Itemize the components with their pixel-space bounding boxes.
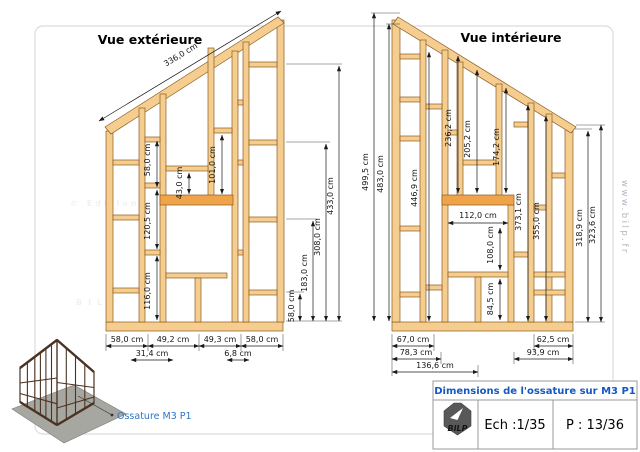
dim-120: 120,5 cm xyxy=(143,202,152,240)
dim-174: 174,2 cm xyxy=(492,128,501,166)
dim-93: 93,9 cm xyxy=(527,348,560,357)
dim-b493: 49,3 cm xyxy=(204,335,237,344)
dim-308: 308,0 cm xyxy=(313,218,322,256)
window-sill xyxy=(448,272,508,277)
dim-236: 236,2 cm xyxy=(444,109,453,147)
title-block-title: Dimensions de l'ossature sur M3 P1 xyxy=(434,386,636,397)
inset-leader-dot xyxy=(111,414,114,417)
window-sill xyxy=(166,273,227,278)
dim-58-right: 58,0 cm xyxy=(287,290,296,323)
bilp-logo: BILP xyxy=(444,403,471,435)
dim-58-inner: 58,0 cm xyxy=(143,144,152,177)
dim-84: 84,5 cm xyxy=(486,283,495,316)
sheet-border xyxy=(35,26,613,434)
view-interior: Vue intérieure xyxy=(361,13,605,377)
dim-101: 101,0 cm xyxy=(208,146,217,184)
dim-78: 78,3 cm xyxy=(400,348,433,357)
dim-433: 433,0 cm xyxy=(326,177,335,215)
title-block: Dimensions de l'ossature sur M3 P1 BILP … xyxy=(433,381,637,449)
site-watermark: www.bilp.fr xyxy=(619,180,629,255)
dim-323: 323,6 cm xyxy=(588,206,597,244)
watermark-line2: BILP xyxy=(76,298,120,307)
dim-499: 499,5 cm xyxy=(361,153,370,191)
bilp-logo-text: BILP xyxy=(447,424,467,433)
page-value: P : 13/36 xyxy=(566,418,624,433)
view-exterior: Vue extérieure xyxy=(98,11,342,360)
dim-b314: 31,4 cm xyxy=(136,349,169,358)
plan-sheet: © Editions BILP Vue extérieure xyxy=(0,0,640,452)
exterior-title: Vue extérieure xyxy=(98,32,202,47)
dim-483: 483,0 cm xyxy=(376,155,385,193)
dim-136: 136,6 cm xyxy=(416,361,454,370)
dim-b68: 6,8 cm xyxy=(224,349,252,358)
exterior-frame xyxy=(105,17,284,331)
dim-b492: 49,2 cm xyxy=(157,335,190,344)
plan-drawing: © Editions BILP Vue extérieure xyxy=(0,0,640,452)
inset-label: Ossature M3 P1 xyxy=(117,411,192,422)
dim-67: 67,0 cm xyxy=(397,335,430,344)
scale-value: Ech :1/35 xyxy=(484,418,545,433)
dim-373: 373,1 cm xyxy=(514,193,523,231)
dim-b58a: 58,0 cm xyxy=(111,335,144,344)
dim-318: 318,9 cm xyxy=(575,209,584,247)
dim-183: 183,0 cm xyxy=(300,254,309,292)
dim-205: 205,2 cm xyxy=(463,120,472,158)
interior-title: Vue intérieure xyxy=(460,30,561,45)
interior-frame xyxy=(392,17,576,331)
dim-446: 446,9 cm xyxy=(410,169,419,207)
dim-112: 112,0 cm xyxy=(459,211,497,220)
dim-62: 62,5 cm xyxy=(537,335,570,344)
dim-108: 108,0 cm xyxy=(486,226,495,264)
dim-b58b: 58,0 cm xyxy=(246,335,279,344)
dim-355: 355,0 cm xyxy=(532,202,541,240)
dim-116: 116,0 cm xyxy=(143,272,152,310)
dim-43: 43,0 cm xyxy=(175,167,184,200)
window-header xyxy=(160,195,233,205)
window-header xyxy=(442,195,514,205)
